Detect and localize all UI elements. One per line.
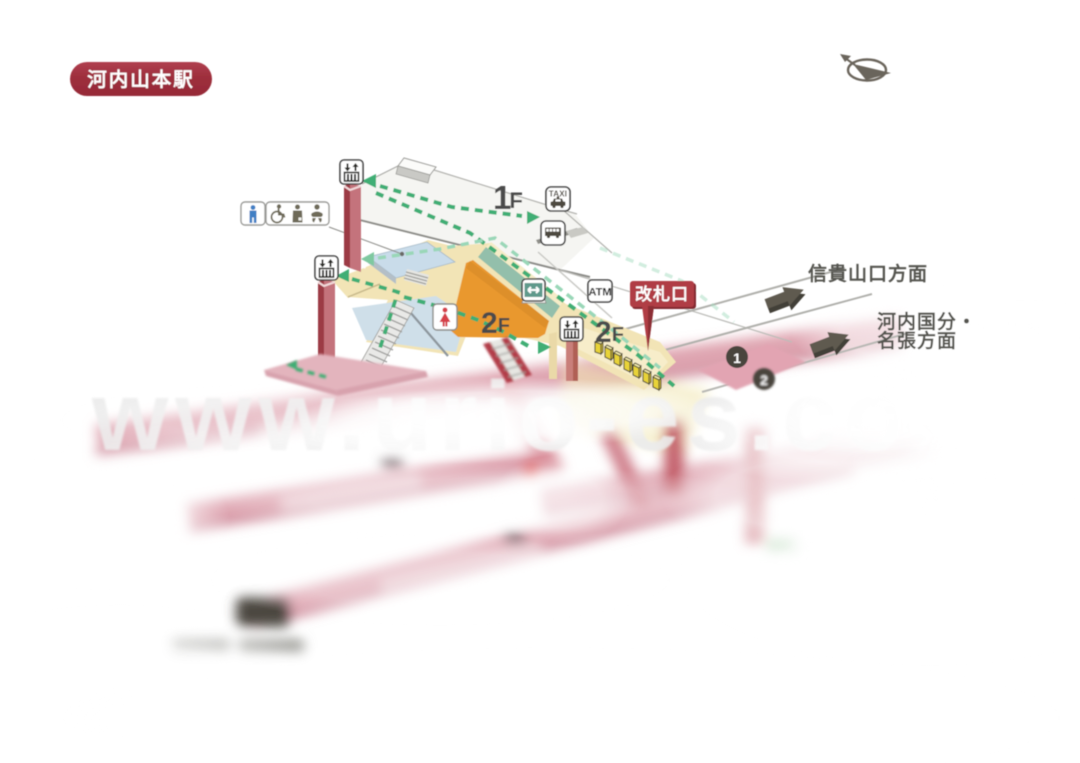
svg-text:2F: 2F: [595, 316, 624, 349]
svg-text:河内山本駅: 河内山本駅: [87, 68, 195, 91]
svg-text:改札口: 改札口: [635, 284, 689, 304]
svg-text:ATM: ATM: [588, 287, 611, 299]
svg-text:信貴山口方面: 信貴山口方面: [808, 262, 928, 285]
svg-text:1F: 1F: [493, 179, 522, 216]
svg-text:1: 1: [733, 350, 741, 366]
svg-text:河内国分・: 河内国分・: [877, 310, 977, 333]
svg-text:2: 2: [760, 372, 768, 388]
svg-text:名張方面: 名張方面: [877, 329, 957, 352]
